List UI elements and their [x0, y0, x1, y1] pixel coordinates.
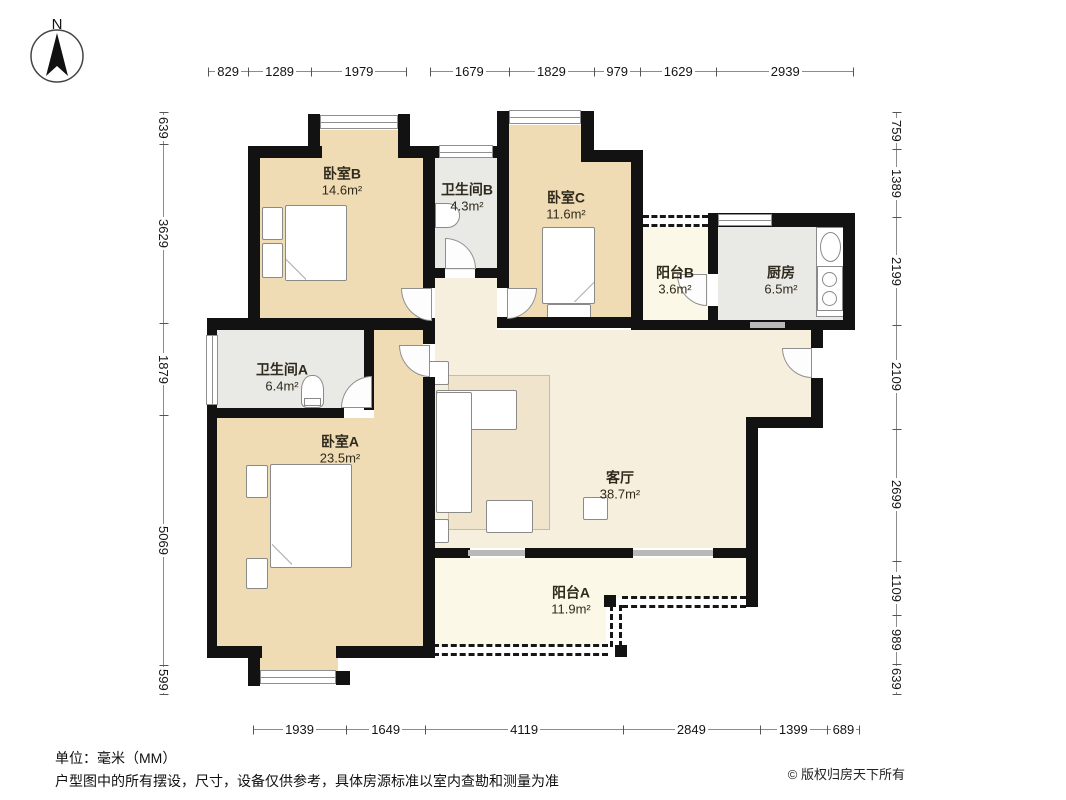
dimension-segment: 4119	[425, 722, 623, 737]
toilet-tank	[304, 398, 321, 406]
room-name: 客厅	[600, 468, 640, 486]
stove-burner	[822, 291, 837, 306]
dimension-segment: 639	[156, 112, 171, 144]
wall	[207, 408, 344, 418]
balcony-b-open-edge	[643, 215, 708, 227]
window-bathroom-a	[206, 335, 218, 405]
wall	[715, 320, 855, 330]
sofa-chaise-section	[436, 392, 472, 513]
bedroom-c-bay-floor	[509, 125, 581, 162]
dimension-chain-top-left: 82912891979	[208, 64, 407, 79]
nightstand	[246, 465, 268, 498]
dimension-value: 759	[889, 118, 904, 144]
nightstand	[262, 243, 283, 278]
room-label-balcony-b: 阳台B 3.6m²	[656, 263, 694, 298]
bedroom-a-nook-floor	[374, 330, 423, 418]
room-name: 卫生间B	[441, 180, 493, 198]
balcony-a-open-edge	[622, 596, 746, 608]
room-label-bedroom-c: 卧室C 11.6m²	[546, 188, 586, 223]
dimension-chain-top-right: 1679182997916292939	[430, 64, 854, 79]
sliding-door-opening	[468, 550, 525, 556]
copyright-notice: © 版权归房天下所有	[788, 764, 905, 783]
dimension-segment: 1399	[760, 722, 827, 737]
room-area: 4.3m²	[441, 199, 493, 216]
dimension-segment: 639	[889, 664, 904, 695]
wall	[207, 408, 217, 648]
stove-burner	[822, 272, 837, 287]
dimension-value: 1649	[369, 722, 402, 737]
room-area: 38.7m²	[600, 487, 640, 504]
dimension-segment: 1109	[889, 561, 904, 615]
room-label-bathroom-b: 卫生间B 4.3m²	[441, 180, 493, 215]
dimension-segment: 2939	[716, 64, 854, 79]
floorplan-canvas: N 82912891979 1679182997916292939 639362…	[0, 0, 1066, 800]
wall	[423, 321, 435, 344]
room-name: 卫生间A	[256, 360, 308, 378]
dimension-segment: 1939	[253, 722, 346, 737]
room-label-bathroom-a: 卫生间A 6.4m²	[256, 360, 308, 395]
dimension-chain-left: 639362918795069599	[156, 112, 171, 695]
dimension-value: 2699	[889, 478, 904, 511]
disclaimer: 户型图中的所有摆设，尺寸，设备仅供参考，具体房源标准以室内查勘和测量为准	[55, 771, 559, 791]
dimension-segment: 1979	[311, 64, 407, 79]
dimension-segment: 1629	[640, 64, 716, 79]
dimension-value: 1829	[535, 64, 568, 79]
blanket-fold	[272, 543, 292, 565]
bay-window-bedroom-a	[260, 670, 336, 684]
dimension-value: 1389	[889, 167, 904, 200]
compass-north-label: N	[52, 16, 63, 33]
dimension-value: 2109	[889, 360, 904, 393]
dimension-value: 1109	[889, 572, 904, 604]
wall	[336, 646, 435, 658]
dimension-segment: 689	[827, 722, 860, 737]
dimension-value: 829	[215, 64, 241, 79]
dimension-segment: 1679	[430, 64, 509, 79]
dimension-value: 1289	[263, 64, 296, 79]
room-name: 卧室A	[320, 432, 360, 450]
dimension-segment: 1289	[248, 64, 311, 79]
dimension-segment: 2699	[889, 429, 904, 561]
dimension-chain-right: 75913892199210926991109989639	[889, 112, 904, 695]
room-name: 阳台B	[656, 263, 694, 281]
dimension-value: 1939	[283, 722, 316, 737]
kitchen-sink	[820, 232, 841, 262]
wall	[811, 330, 823, 348]
wall	[746, 428, 758, 607]
balcony-a-open-edge	[433, 644, 608, 656]
dimension-segment: 5069	[156, 415, 171, 665]
wall	[423, 268, 445, 278]
compass: N	[24, 12, 92, 86]
dimension-value: 979	[604, 64, 630, 79]
room-label-kitchen: 厨房 6.5m²	[764, 263, 797, 298]
dimension-value: 5069	[156, 524, 171, 557]
hallway-floor	[435, 278, 497, 330]
room-name: 阳台A	[551, 583, 591, 601]
room-area: 14.6m²	[322, 183, 362, 200]
dimension-segment: 2109	[889, 325, 904, 428]
wall	[713, 548, 746, 558]
nightstand	[246, 558, 268, 589]
bay-window-bedroom-c	[509, 110, 581, 124]
room-area: 3.6m²	[656, 282, 694, 299]
wall	[525, 548, 633, 558]
wall	[398, 114, 410, 148]
dimension-value: 2939	[769, 64, 802, 79]
room-area: 6.4m²	[256, 379, 308, 396]
wall	[207, 646, 262, 658]
dimension-value: 1629	[662, 64, 695, 79]
wall	[643, 320, 715, 330]
wall	[423, 146, 435, 288]
armchair	[486, 500, 533, 533]
sliding-door-opening	[633, 550, 713, 556]
dimension-value: 1979	[342, 64, 375, 79]
dimension-chain-bottom: 19391649411928491399689	[253, 722, 860, 737]
wall	[336, 671, 350, 685]
dimension-value: 1879	[156, 353, 171, 386]
dimension-value: 599	[156, 667, 171, 693]
dimension-value: 689	[831, 722, 857, 737]
dimension-segment: 979	[594, 64, 640, 79]
room-area: 11.6m²	[546, 207, 586, 224]
dimension-value: 639	[156, 115, 171, 141]
dimension-segment: 989	[889, 615, 904, 663]
dimension-segment: 759	[889, 112, 904, 149]
room-area: 23.5m²	[320, 451, 360, 468]
room-name: 卧室B	[322, 164, 362, 182]
balcony-a-open-edge	[610, 605, 622, 647]
room-label-bedroom-a: 卧室A 23.5m²	[320, 432, 360, 467]
room-area: 6.5m²	[764, 282, 797, 299]
wall	[497, 317, 643, 328]
room-area: 11.9m²	[551, 602, 591, 619]
wall	[843, 213, 855, 330]
unit-note: 单位：毫米（MM）	[55, 748, 176, 768]
wall	[631, 150, 643, 330]
dimension-segment: 1879	[156, 323, 171, 416]
window-kitchen	[718, 214, 772, 226]
wall	[308, 114, 320, 148]
dimension-segment: 829	[208, 64, 248, 79]
dimension-value: 2199	[889, 255, 904, 288]
dimension-value: 1399	[777, 722, 810, 737]
wall	[497, 111, 509, 288]
bay-window-bedroom-b	[320, 115, 398, 129]
room-label-balcony-a: 阳台A 11.9m²	[551, 583, 591, 618]
dimension-value: 1679	[453, 64, 486, 79]
dimension-value: 639	[889, 666, 904, 692]
room-name: 卧室C	[546, 188, 586, 206]
bedroom-b-bay-floor	[320, 130, 398, 160]
balcony-a-floor-right	[606, 558, 746, 598]
dimension-segment: 599	[156, 665, 171, 695]
kitchen-pass-opening	[750, 322, 785, 328]
window-bathroom-b	[439, 145, 493, 158]
wall	[248, 658, 260, 686]
room-label-bedroom-b: 卧室B 14.6m²	[322, 164, 362, 199]
dimension-segment: 1389	[889, 149, 904, 217]
dimension-segment: 2849	[623, 722, 760, 737]
dimension-value: 4119	[508, 722, 540, 737]
nightstand	[262, 207, 283, 240]
blanket-fold	[574, 282, 594, 302]
room-label-living-room: 客厅 38.7m²	[600, 468, 640, 503]
dimension-segment: 1649	[346, 722, 425, 737]
dimension-segment: 3629	[156, 144, 171, 323]
dimension-segment: 1829	[509, 64, 595, 79]
dimension-value: 2849	[675, 722, 708, 737]
dimension-value: 3629	[156, 217, 171, 250]
blanket-fold	[286, 258, 306, 280]
room-name: 厨房	[764, 263, 797, 281]
wall	[423, 548, 470, 558]
wall	[746, 417, 823, 428]
wall	[207, 318, 435, 330]
wall	[423, 377, 435, 646]
dimension-value: 989	[889, 627, 904, 653]
dimension-segment: 2199	[889, 217, 904, 325]
bedroom-a-bay-floor	[260, 646, 338, 671]
wall	[248, 146, 260, 330]
